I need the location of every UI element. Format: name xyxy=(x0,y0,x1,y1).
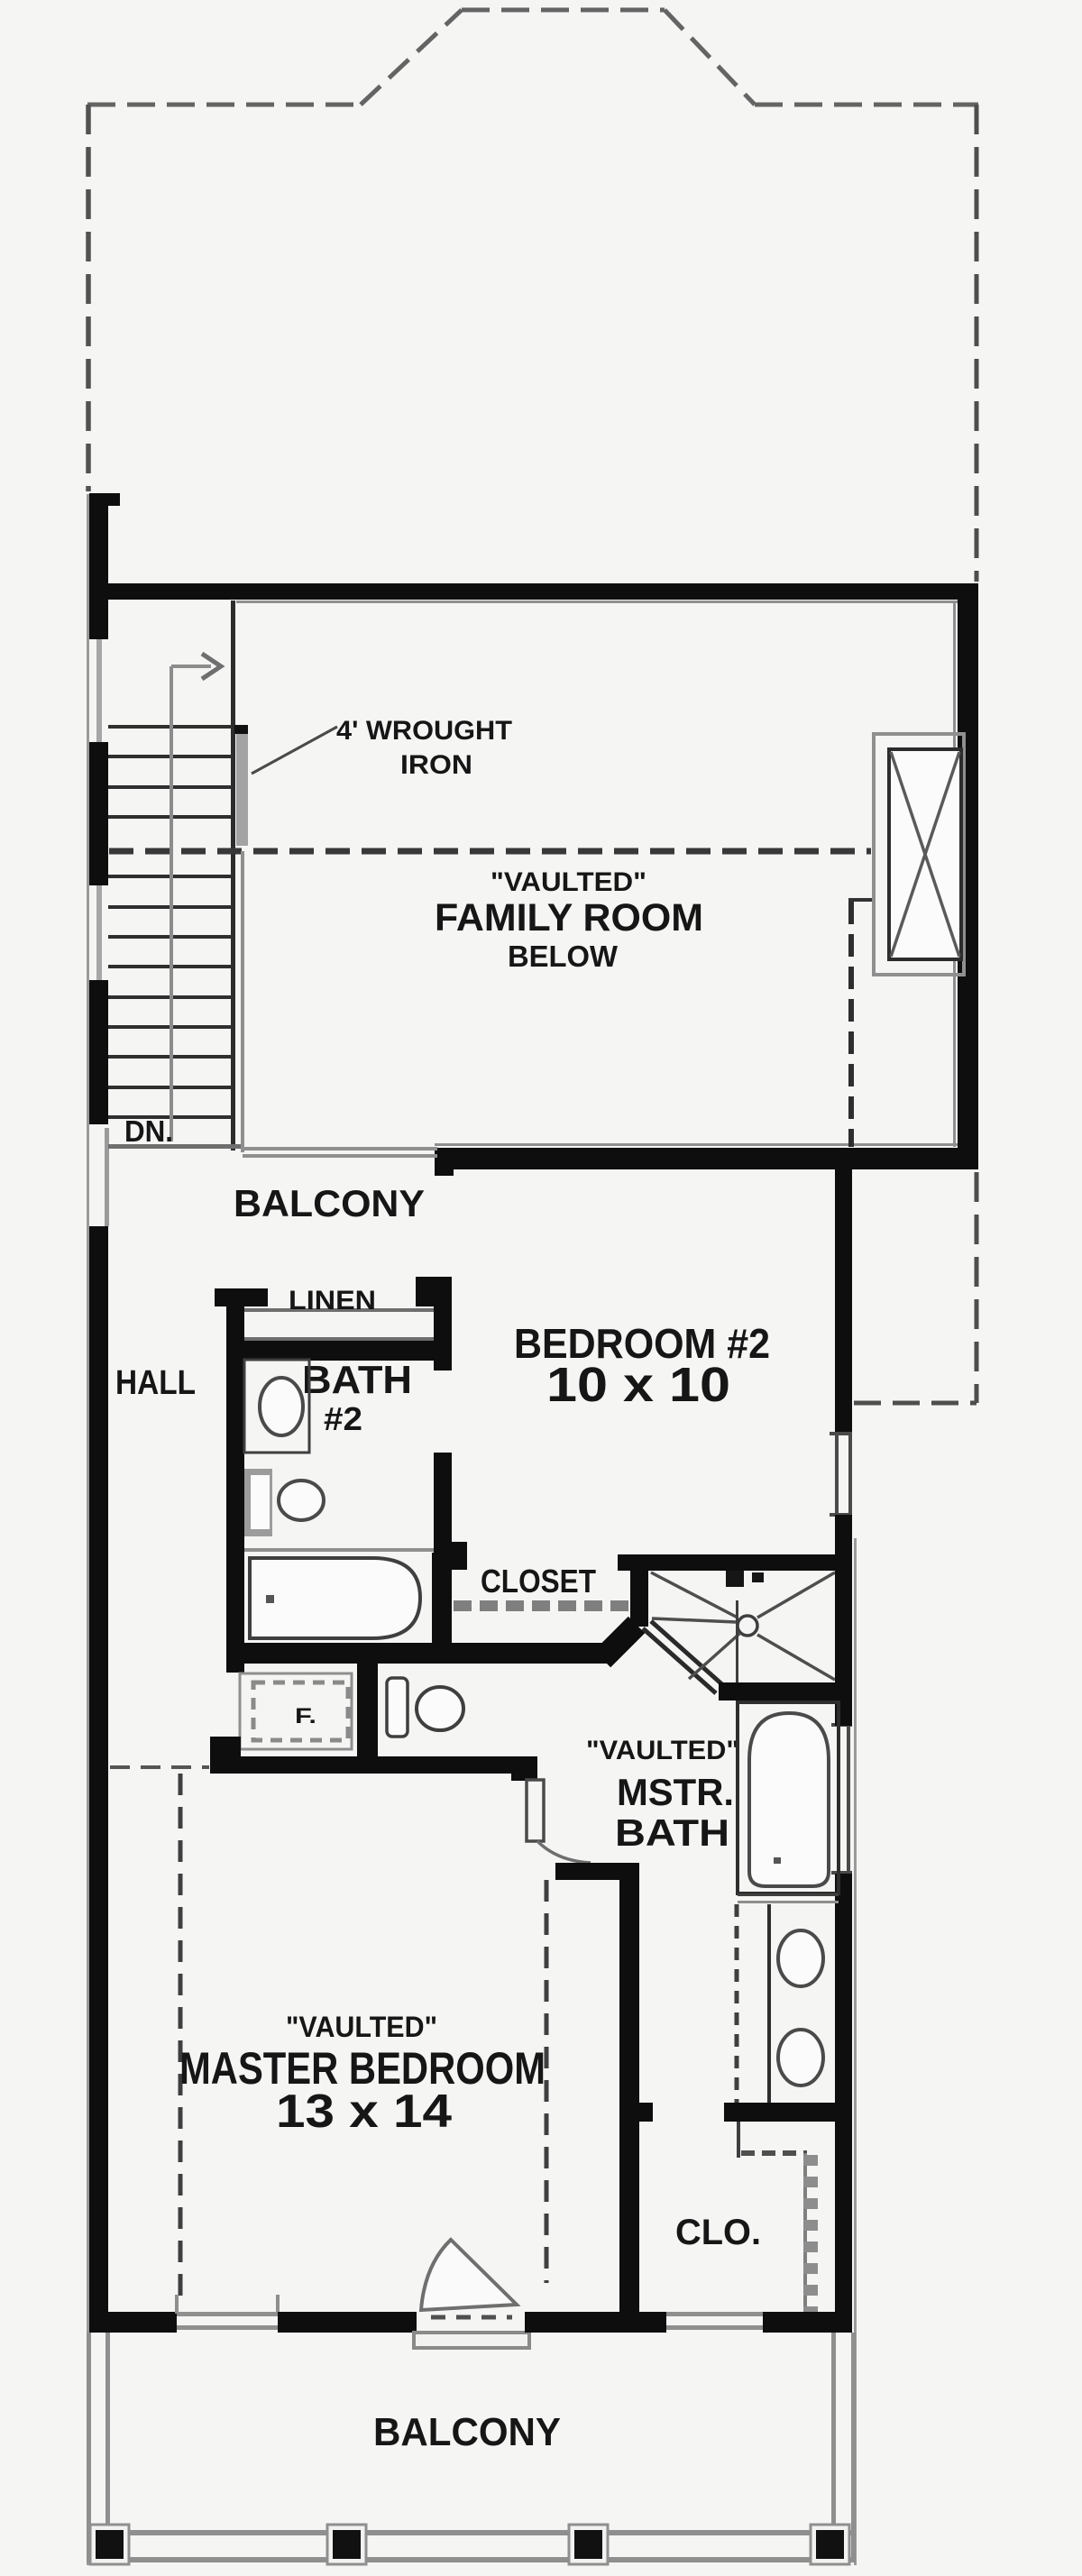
svg-text:DN.: DN. xyxy=(124,1114,173,1148)
svg-text:10 x 10: 10 x 10 xyxy=(546,1358,730,1412)
svg-text:4' WROUGHT: 4' WROUGHT xyxy=(336,716,512,746)
svg-text:13 x 14: 13 x 14 xyxy=(276,2086,452,2138)
svg-text:BATH: BATH xyxy=(302,1358,412,1402)
svg-text:BALCONY: BALCONY xyxy=(373,2410,561,2454)
svg-text:#2: #2 xyxy=(324,1400,362,1437)
svg-text:BALCONY: BALCONY xyxy=(234,1182,425,1224)
svg-text:F.: F. xyxy=(295,1704,316,1728)
svg-text:IRON: IRON xyxy=(400,750,472,780)
svg-text:LINEN: LINEN xyxy=(289,1286,376,1316)
svg-text:MSTR.: MSTR. xyxy=(617,1771,734,1813)
svg-text:FAMILY ROOM: FAMILY ROOM xyxy=(435,896,703,940)
svg-text:BELOW: BELOW xyxy=(508,940,619,973)
svg-text:HALL: HALL xyxy=(115,1364,196,1402)
svg-text:"VAULTED": "VAULTED" xyxy=(491,867,646,897)
svg-text:"VAULTED": "VAULTED" xyxy=(286,2011,437,2043)
svg-text:"VAULTED": "VAULTED" xyxy=(586,1736,739,1765)
svg-text:CLO.: CLO. xyxy=(675,2213,761,2252)
svg-text:BATH: BATH xyxy=(615,1811,729,1854)
svg-text:CLOSET: CLOSET xyxy=(481,1563,596,1600)
